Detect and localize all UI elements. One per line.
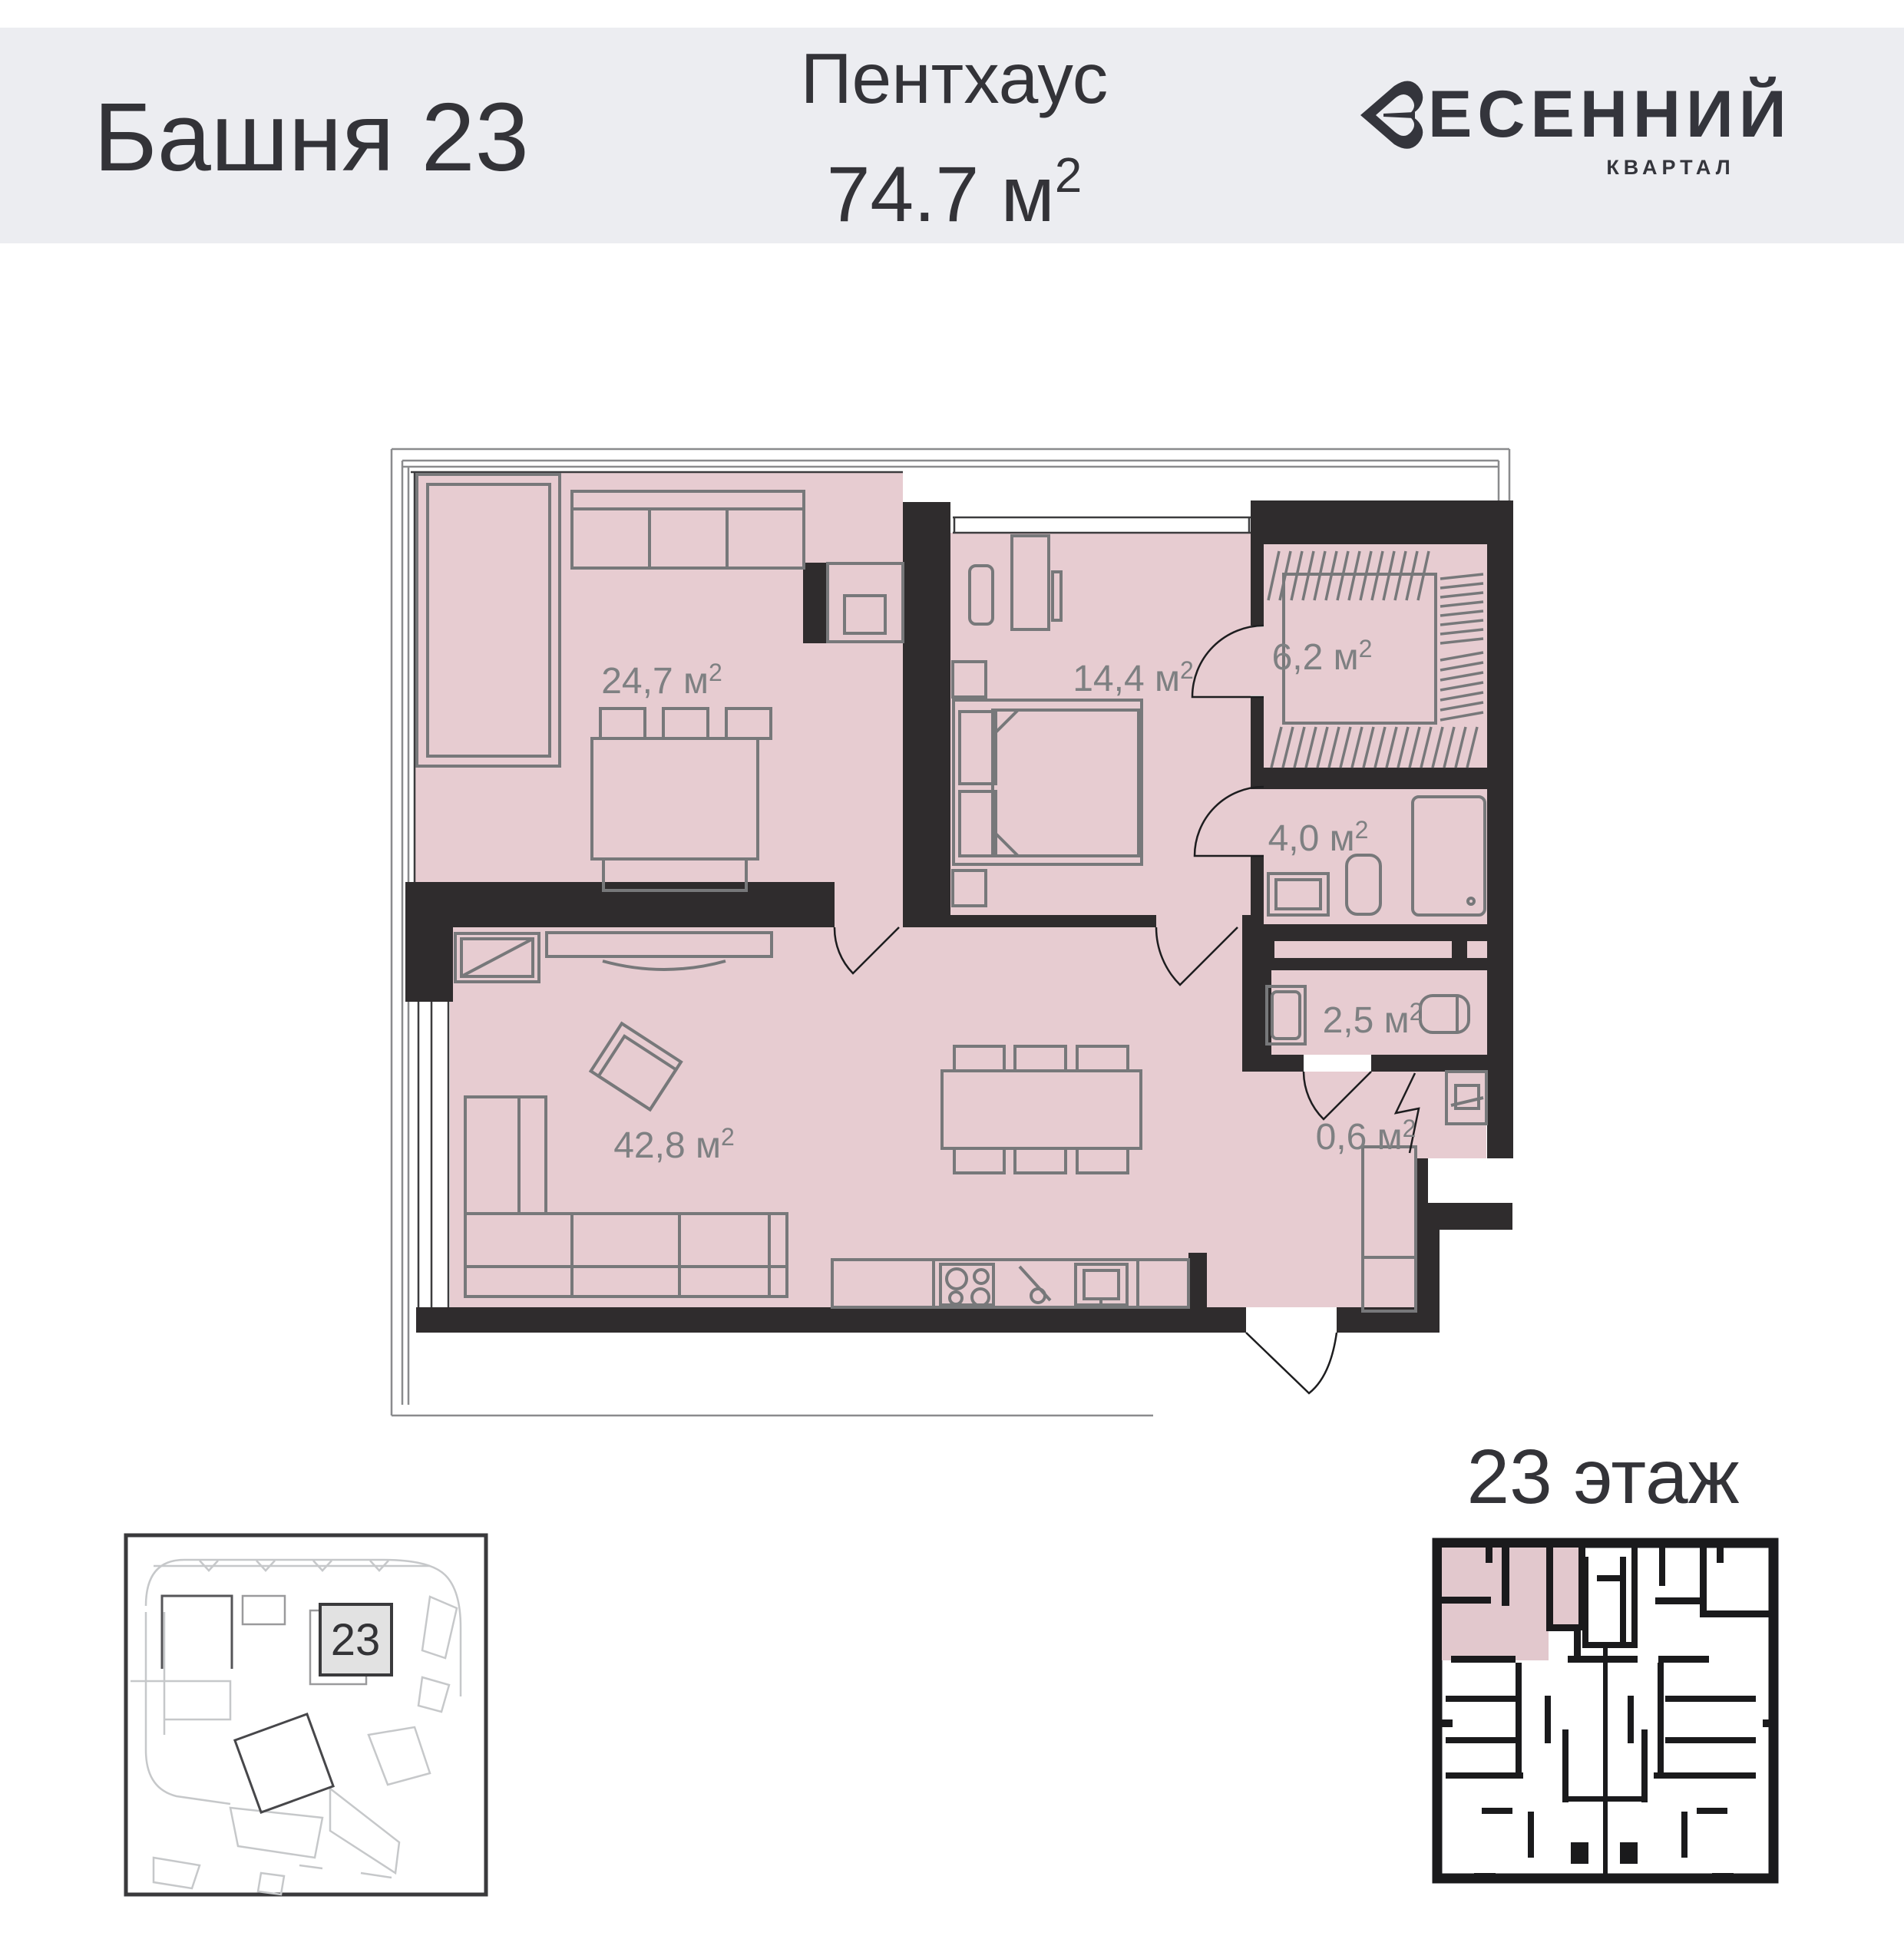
svg-text:74.7 м2: 74.7 м2 [827,147,1083,238]
svg-text:24,7 м2: 24,7 м2 [601,659,722,702]
svg-text:23: 23 [331,1615,381,1665]
svg-text:0,6 м2: 0,6 м2 [1316,1115,1416,1158]
svg-text:23 этаж: 23 этаж [1466,1434,1739,1520]
svg-text:2,5 м2: 2,5 м2 [1323,998,1423,1041]
svg-text:4,0 м2: 4,0 м2 [1268,816,1369,859]
svg-text:Пентхаус: Пентхаус [801,38,1109,118]
svg-text:14,4 м2: 14,4 м2 [1073,656,1194,699]
svg-text:6,2 м2: 6,2 м2 [1272,635,1373,678]
svg-text:42,8 м2: 42,8 м2 [613,1123,735,1166]
svg-text:КВАРТАЛ: КВАРТАЛ [1606,156,1734,179]
svg-text:Башня 23: Башня 23 [94,83,529,191]
svg-text:ЕСЕННИЙ: ЕСЕННИЙ [1428,77,1792,151]
